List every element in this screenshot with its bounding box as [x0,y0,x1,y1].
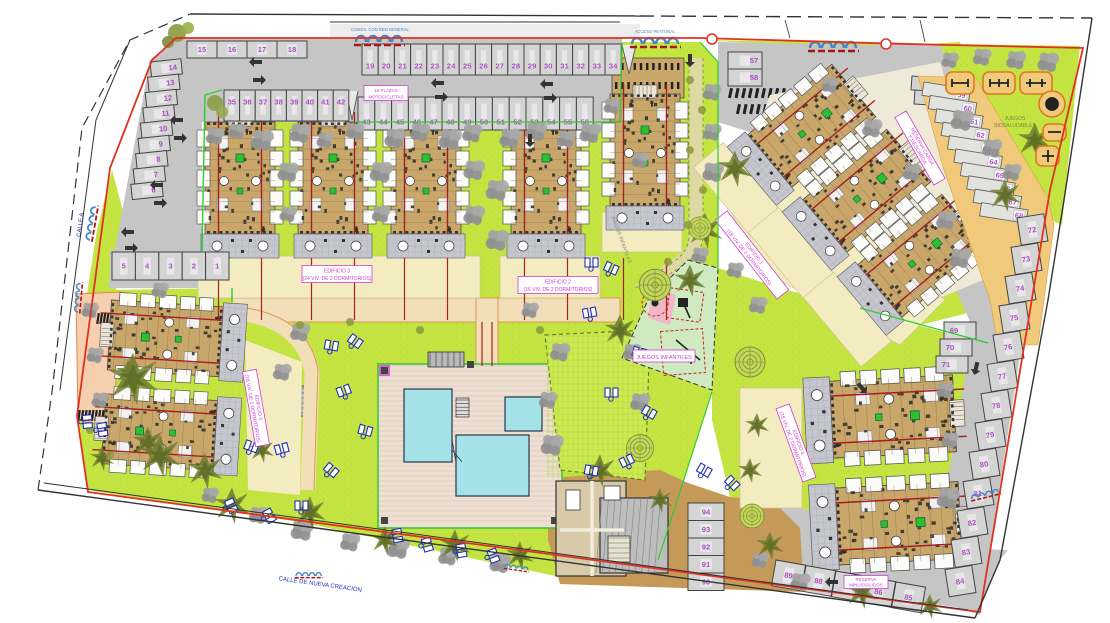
svg-text:ACCESO PEATONAL: ACCESO PEATONAL [635,29,676,34]
svg-text:26: 26 [479,62,487,71]
svg-text:36: 36 [243,98,251,107]
svg-text:88: 88 [814,576,824,586]
svg-text:16: 16 [228,45,236,54]
svg-text:27: 27 [495,62,503,71]
svg-text:37: 37 [259,98,267,107]
svg-text:34: 34 [609,62,618,71]
svg-text:35: 35 [228,98,237,107]
svg-text:CONEX. CON RED GENERAL: CONEX. CON RED GENERAL [351,27,409,32]
svg-text:73: 73 [1021,254,1031,264]
svg-text:62: 62 [976,130,986,140]
svg-text:28: 28 [512,62,520,71]
svg-text:71: 71 [942,360,951,369]
svg-text:72: 72 [1027,225,1037,235]
svg-text:15: 15 [198,45,207,54]
svg-text:(24 VIV. DE 2 DORMITORIOS): (24 VIV. DE 2 DORMITORIOS) [303,276,372,282]
svg-text:58: 58 [750,73,758,82]
svg-text:40: 40 [306,98,314,107]
svg-text:13: 13 [166,78,175,88]
svg-text:57: 57 [750,56,758,65]
svg-text:24: 24 [447,62,456,71]
svg-text:31: 31 [560,62,569,71]
svg-text:25: 25 [463,62,472,71]
svg-text:39: 39 [290,98,298,107]
svg-text:MINUSVALIDOS: MINUSVALIDOS [849,583,883,588]
svg-text:17: 17 [258,45,266,54]
svg-text:30: 30 [544,62,552,71]
svg-text:JUEGOS INFANTILES: JUEGOS INFANTILES [636,355,692,361]
svg-text:12: 12 [163,93,172,103]
svg-text:79: 79 [985,430,995,440]
svg-text:89: 89 [784,570,794,580]
svg-text:91: 91 [702,560,711,569]
svg-text:MOTOCICLETAS: MOTOCICLETAS [368,94,403,99]
svg-text:EDIFICIO 2: EDIFICIO 2 [545,280,571,286]
svg-text:19: 19 [366,62,374,71]
svg-text:42: 42 [337,98,345,107]
svg-text:(16 VIV. DE 2 DORMITORIOS): (16 VIV. DE 2 DORMITORIOS) [524,287,593,293]
svg-text:2: 2 [192,262,196,271]
svg-text:78: 78 [991,401,1001,411]
svg-text:32: 32 [576,62,584,71]
svg-text:29: 29 [528,62,536,71]
svg-text:22: 22 [414,62,422,71]
svg-text:41: 41 [321,98,330,107]
svg-text:BIOSALUDABLES: BIOSALUDABLES [994,123,1036,129]
svg-text:70: 70 [946,343,954,352]
svg-text:82: 82 [967,518,977,528]
svg-text:JUEGOS: JUEGOS [1005,116,1026,122]
svg-text:16 PLAZAS: 16 PLAZAS [374,88,398,93]
svg-text:20: 20 [382,62,390,71]
svg-text:EDIFICIO 3: EDIFICIO 3 [324,269,350,275]
svg-text:77: 77 [997,371,1007,381]
svg-text:94: 94 [702,507,711,516]
svg-text:18: 18 [288,45,296,54]
svg-text:38: 38 [274,98,282,107]
svg-text:33: 33 [593,62,601,71]
svg-text:RESERVA: RESERVA [855,577,876,582]
svg-text:3: 3 [168,262,172,271]
svg-text:93: 93 [702,525,710,534]
svg-text:83: 83 [961,547,971,557]
svg-text:23: 23 [431,62,439,71]
svg-text:92: 92 [702,542,710,551]
svg-text:76: 76 [1003,342,1013,352]
svg-text:10: 10 [158,124,167,134]
svg-text:80: 80 [979,459,989,469]
svg-text:21: 21 [398,62,407,71]
